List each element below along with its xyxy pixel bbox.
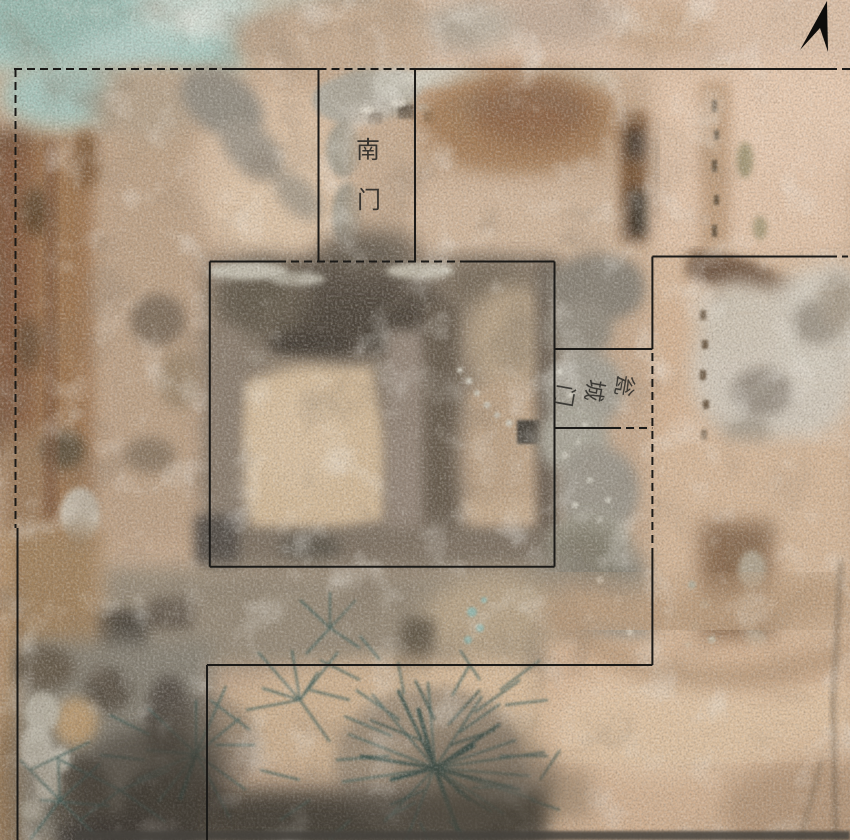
svg-text:城: 城 <box>580 378 608 404</box>
svg-text:门: 门 <box>550 383 578 409</box>
svg-text:门: 门 <box>357 187 381 214</box>
svg-text:南: 南 <box>356 137 380 164</box>
svg-text:瓮: 瓮 <box>610 373 638 399</box>
